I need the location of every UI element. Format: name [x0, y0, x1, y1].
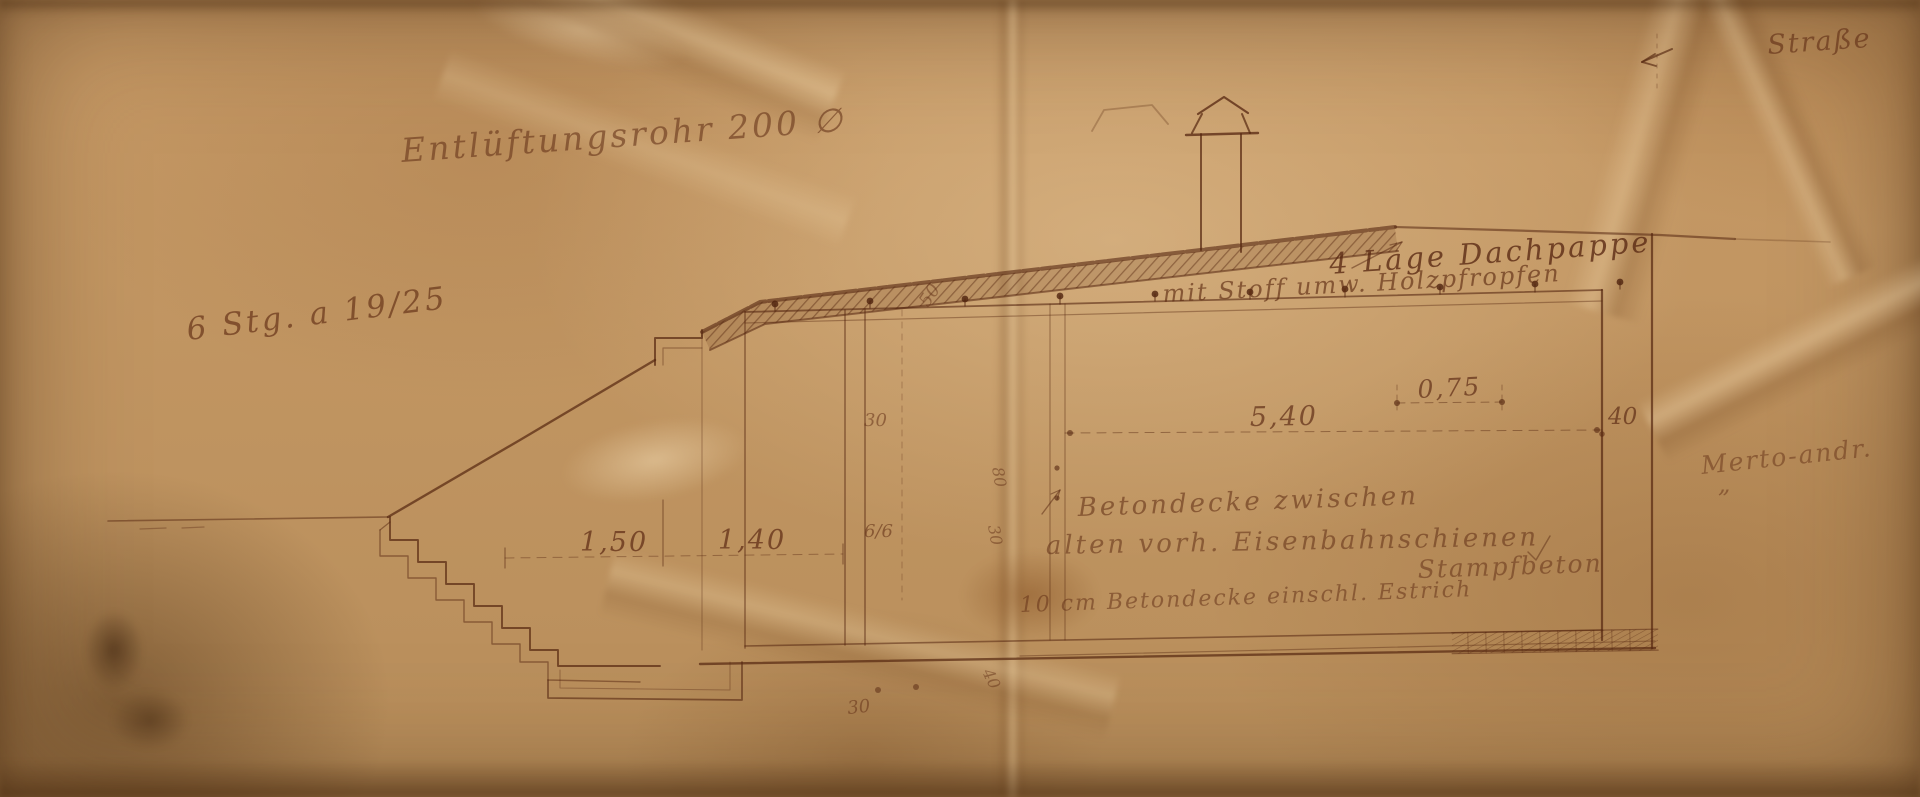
drawing-layer: Entlüftungsrohr 200 ∅ Straße 6 Stg. a 19… [0, 0, 1920, 797]
label-stair-note: 6 Stg. a 19/25 [185, 280, 450, 348]
stairs [380, 517, 742, 700]
dim-right-wall: 40 [1607, 404, 1637, 430]
dim-room-width: 5,40 [1250, 401, 1319, 433]
label-ceiling-1: Betondecke zwischen [1076, 481, 1419, 523]
label-street: Straße [1766, 23, 1872, 61]
partition-b [1050, 304, 1065, 640]
north-arrow [1642, 34, 1672, 90]
rail-hatch [1452, 629, 1658, 654]
drawing-svg: Entlüftungsrohr 200 ∅ Straße 6 Stg. a 19… [0, 0, 1920, 797]
dim-rail-depth: 80 [988, 465, 1010, 488]
ground-line-left [108, 517, 388, 529]
dim-beam-section: 6/6 [864, 521, 893, 542]
dim-rail-width: 30 [984, 523, 1006, 546]
faint-second-cap [1092, 105, 1168, 131]
dim-footing-left: 30 [846, 696, 871, 719]
partition-a [845, 309, 865, 645]
dim-stair-run: 1,50 [580, 527, 648, 558]
label-margin-ditto: „ [1718, 470, 1730, 498]
annotations: Entlüftungsrohr 200 ∅ Straße 6 Stg. a 19… [185, 23, 1874, 719]
dim-stair-landing: 1,40 [718, 525, 786, 556]
vent-pipe [1092, 97, 1258, 252]
dim-floor-edge: 40 [978, 665, 1004, 693]
scanned-drawing: Entlüftungsrohr 200 ∅ Straße 6 Stg. a 19… [0, 0, 1920, 797]
dim-roof-recess: 0,75 [1417, 372, 1482, 404]
embankment-slope [388, 330, 702, 517]
label-vent-pipe: Entlüftungsrohr 200 ∅ [399, 100, 846, 170]
dim-partition: 30 [864, 410, 887, 431]
label-floor-note: 10 cm Betondecke einschl. Estrich [1019, 577, 1472, 618]
